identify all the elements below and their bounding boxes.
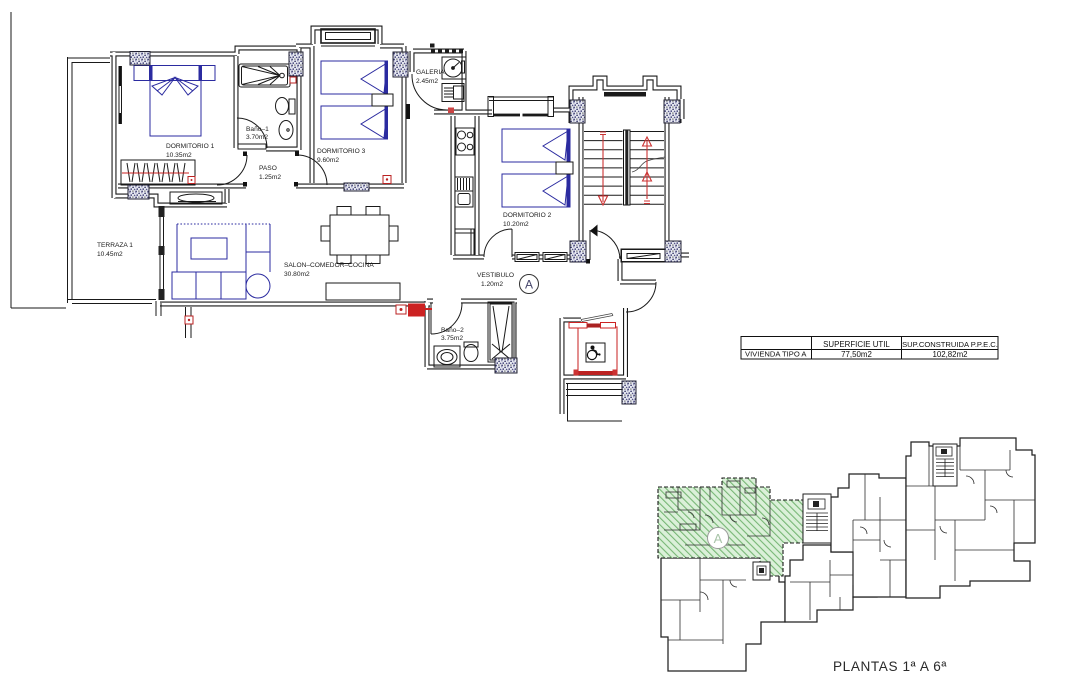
svg-text:TERRAZA 1: TERRAZA 1 [97, 242, 133, 249]
svg-text:30.80m2: 30.80m2 [284, 271, 310, 278]
svg-text:DORMITORIO 2: DORMITORIO 2 [503, 212, 552, 219]
svg-text:PASO: PASO [259, 165, 277, 172]
svg-text:A: A [714, 531, 723, 546]
svg-text:3.75m2: 3.75m2 [441, 335, 463, 342]
svg-text:DORMITORIO 1: DORMITORIO 1 [166, 143, 215, 150]
svg-text:SUPERFICIE UTIL: SUPERFICIE UTIL [823, 340, 890, 349]
svg-text:10.45m2: 10.45m2 [97, 251, 123, 258]
svg-text:A: A [525, 278, 533, 292]
svg-text:VIVIENDA TIPO A: VIVIENDA TIPO A [745, 350, 807, 359]
svg-text:77,50m2: 77,50m2 [841, 350, 872, 359]
svg-text:DORMITORIO 3: DORMITORIO 3 [317, 148, 366, 155]
svg-text:2.45m2: 2.45m2 [416, 78, 438, 85]
svg-text:VESTIBULO: VESTIBULO [477, 272, 514, 279]
svg-text:10.20m2: 10.20m2 [503, 221, 529, 228]
svg-text:Baño–1: Baño–1 [246, 126, 269, 133]
svg-text:Baño–2: Baño–2 [441, 327, 464, 334]
svg-text:3.70m2: 3.70m2 [246, 134, 268, 141]
svg-text:9.60m2: 9.60m2 [317, 157, 339, 164]
svg-text:GALERIA: GALERIA [416, 69, 445, 76]
svg-text:SUP.CONSTRUIDA P.P.E.C.: SUP.CONSTRUIDA P.P.E.C. [902, 340, 998, 349]
svg-text:1.25m2: 1.25m2 [259, 174, 281, 181]
svg-text:102,82m2: 102,82m2 [932, 350, 967, 359]
svg-text:1.20m2: 1.20m2 [481, 281, 503, 288]
svg-text:SALON–COMEDOR–COCINA: SALON–COMEDOR–COCINA [284, 262, 374, 269]
svg-text:PLANTAS 1ª A 6ª: PLANTAS 1ª A 6ª [833, 659, 947, 674]
svg-text:10.35m2: 10.35m2 [166, 152, 192, 159]
